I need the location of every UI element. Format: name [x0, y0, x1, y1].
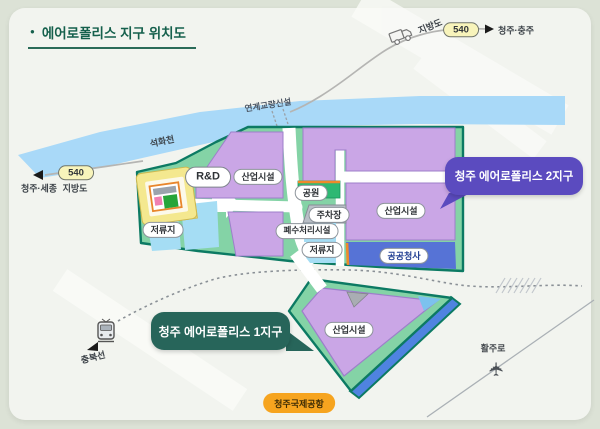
- wastewater-label: 폐수처리시설: [276, 223, 339, 239]
- train-icon: [98, 319, 114, 342]
- industry-east-label: 산업시설: [376, 203, 425, 219]
- retention-west-label: 저류지: [143, 222, 184, 238]
- industry-block-sw: [228, 212, 283, 256]
- airport-badge: 청주국제공항: [263, 393, 335, 413]
- park-label: 공원: [295, 185, 328, 201]
- district1-callout: 청주 에어로폴리스 1지구: [151, 312, 290, 350]
- public-office-label: 공공청사: [379, 248, 428, 264]
- page-title-text: 에어로폴리스 지구 위치도: [42, 22, 186, 42]
- parking-label: 주차장: [309, 207, 350, 223]
- public-office-orange-edge: [347, 243, 348, 265]
- facility-green-plot: [163, 194, 179, 208]
- runway-label: 활주로: [481, 342, 506, 355]
- industry-west-label: 산업시설: [233, 169, 282, 185]
- road-right-number-badge: 540: [443, 22, 479, 37]
- road-right-arrow-icon: [485, 25, 494, 34]
- road-left-name-label: 지방도: [63, 182, 88, 195]
- runway-line: [427, 300, 594, 417]
- aeropolis-location-map: ✈ ● 에어로폴리스 지구 위치도 석화천 연계교량신설 지방도 540 청주·…: [0, 0, 600, 429]
- district1-industry-label: 산업시설: [324, 322, 373, 338]
- page-title: ● 에어로폴리스 지구 위치도: [28, 22, 196, 49]
- district2-callout: 청주 에어로폴리스 2지구: [445, 157, 583, 195]
- title-bullet-icon: ●: [30, 28, 35, 36]
- road-left-number-badge: 540: [58, 165, 94, 180]
- airplane-icon: ✈: [487, 361, 508, 377]
- district1-area: [289, 279, 460, 398]
- rnd-label: R&D: [185, 167, 231, 188]
- retention-mid-label: 저류지: [302, 242, 343, 258]
- facility-pink-plot: [154, 196, 163, 205]
- road-right-destination-label: 청주·충주: [498, 24, 534, 37]
- map-canvas: ✈: [0, 0, 600, 429]
- road-left-destination-label: 청주·세종: [21, 182, 57, 195]
